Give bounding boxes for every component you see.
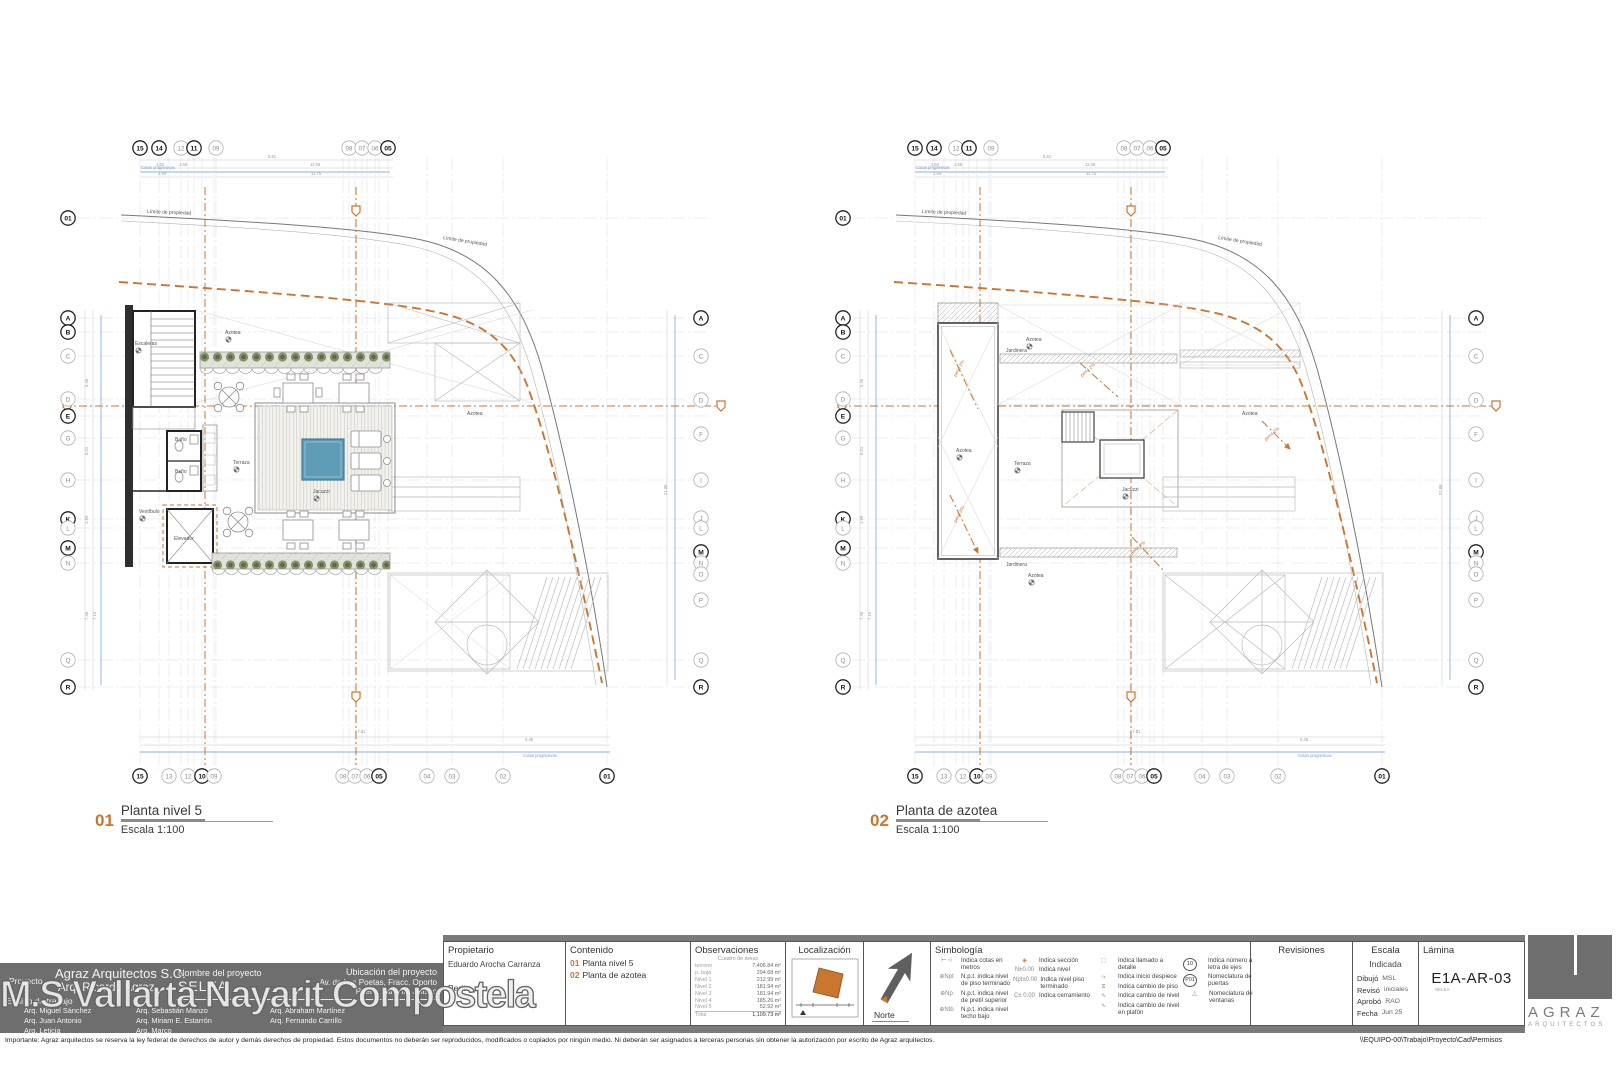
dimension-text: 1.52 — [156, 162, 165, 167]
symbology-text: Indica nivel — [1039, 967, 1091, 974]
grid-bubble-label: E — [841, 413, 846, 420]
grid-bubble-label: C — [66, 353, 71, 360]
grid-bubble-label: C — [1474, 353, 1479, 360]
area-row: Nivel 1212.99 m² — [695, 977, 781, 984]
grid-bubble-label: 15 — [911, 773, 919, 780]
grid-bubble-label: 14 — [155, 145, 163, 152]
grid-bubble-label: D — [1474, 397, 1479, 404]
grid-bubble-label: F — [699, 431, 703, 438]
grid-bubble-label: N — [1474, 560, 1478, 567]
symbology-item: ∿Indica cambio de nivel — [1092, 993, 1182, 1000]
grid-bubble-label: G — [66, 435, 71, 442]
reviewed-by-value: iniciales — [1384, 986, 1408, 995]
symbology-text: Indica cambio de piso — [1118, 984, 1182, 991]
observations-header: Observaciones — [695, 945, 781, 956]
symbology-glyph-despiece: ⤷ — [1092, 974, 1115, 981]
plan-label: Cotas progresivas — [1298, 753, 1332, 758]
dimension-text: 0.45 — [525, 737, 534, 742]
grid-bubble-label: 10 — [198, 773, 206, 780]
symbology-glyph-dim: ⊢⊣ — [935, 958, 958, 972]
symbology-glyph-np: ⊕Np — [935, 991, 958, 1005]
section-marker — [1127, 206, 1135, 216]
content-item-number: 01 — [570, 958, 579, 968]
content-item-number: 02 — [570, 970, 579, 980]
grid-bubble-label: L — [66, 525, 70, 532]
date-label: Fecha — [1357, 1009, 1378, 1018]
symbology-glyph-section: ◈ — [1013, 958, 1036, 965]
plan-label: Baño — [175, 437, 187, 443]
team-member: Arq. Miriam E. Estarrón — [136, 1016, 266, 1025]
date-row: Fecha Jun 25 — [1357, 1009, 1414, 1018]
grid-bubble-label: Q — [841, 657, 846, 664]
symbology-cell: Simbología ⊢⊣Indica cotas en metros⊕NptN… — [931, 942, 1251, 1025]
symbology-item: ⊢⊣Indica cotas en metros — [935, 958, 1012, 972]
title-block: Propietario Eduardo Arocha Carranza Peri… — [443, 935, 1525, 1035]
revisions-header: Revisiones — [1255, 945, 1348, 956]
dimension-text: 1.99 — [859, 515, 864, 524]
content-item-text: Planta de azotea — [582, 970, 646, 980]
dimension-text: 17.81 — [355, 729, 366, 734]
grid-bubble-label: 13 — [941, 773, 948, 780]
grid-bubble-label: M — [698, 549, 704, 556]
plan2-title: 02 Planta de azotea Escala 1:100 — [870, 803, 1048, 836]
plan-label: Límite de propiedad — [443, 235, 488, 248]
loungers — [351, 431, 391, 491]
grid-bubble-label: 08 — [1121, 145, 1128, 152]
sheet-number-header: Lámina — [1423, 945, 1520, 956]
team-member: Arq. Marco — [136, 1026, 266, 1035]
grid-bubble-label: 05 — [384, 145, 392, 152]
dimension-text: 5.46 — [859, 378, 864, 387]
grid-bubble-label: H — [66, 477, 70, 484]
symbology-item: ⤷Indica inicio despiece — [1092, 974, 1182, 981]
grid-bubble-label: A — [1474, 315, 1479, 322]
grid-bubble-label: M — [1473, 549, 1479, 556]
dimension-text: 5.46 — [84, 378, 89, 387]
roof-parapet — [938, 323, 998, 559]
copyright-disclaimer: Importante: Agraz arquitectos se reserva… — [5, 1037, 934, 1044]
area-row: p. baja294.68 m² — [695, 970, 781, 977]
grid-bubble-label: A — [66, 315, 71, 322]
grid-bubble-label: L — [699, 525, 703, 532]
grid-bubble-label: N — [66, 560, 70, 567]
dimension-text: 1.52 — [931, 162, 940, 167]
grid-bubble-label: R — [1474, 684, 1479, 691]
level-marker-icon — [140, 516, 145, 521]
north-label: Norte — [872, 1010, 909, 1022]
level-marker-icon — [136, 348, 141, 353]
dimension-text: 7.46 — [859, 611, 864, 620]
dimension-text: 5.81 — [1043, 154, 1052, 159]
team-member: Arq. Juan Antonio — [24, 1016, 132, 1025]
scale-header: Escala — [1357, 945, 1414, 956]
grid-bubble-label: I — [1475, 477, 1477, 484]
grid-bubble-label: P — [1474, 597, 1478, 604]
plan-azotea: 1514121109080706051513121009080706050403… — [830, 125, 1510, 795]
grid-bubble-label: 07 — [359, 145, 366, 152]
symbology-col2: ◈Indica secciónN±0.00Indica nivelNpt±0.0… — [1013, 958, 1091, 1024]
section-marker — [1127, 692, 1135, 702]
grid-bubble-label: C — [841, 353, 846, 360]
plan-label: Cotas progresivas — [523, 753, 557, 758]
grid-bubble-label: 01 — [1378, 773, 1386, 780]
plan2-scale: Escala 1:100 — [896, 824, 1048, 836]
plan-label: Límite de propiedad — [922, 209, 967, 217]
plan-artwork — [838, 160, 1500, 765]
level-marker-icon — [1123, 494, 1128, 499]
grid-bubble-label: O — [1474, 571, 1479, 578]
plan2-number: 02 — [870, 803, 889, 829]
grid-bubble-label: 05 — [375, 773, 383, 780]
symbology-item: ⊕NptN.p.t. indica nivel de piso terminad… — [935, 974, 1012, 988]
grid-bubble-label: 07 — [1134, 145, 1141, 152]
logo-slit — [1574, 935, 1577, 975]
area-row: Nivel 552.92 m² — [695, 1004, 781, 1011]
grid-bubble-label: N — [841, 560, 845, 567]
grid-bubble-label: 05 — [1159, 145, 1167, 152]
symbology-item: ⊕NpN.p.t. indica nivel de pretil superio… — [935, 991, 1012, 1005]
dimension-text: 11.75 — [311, 171, 322, 176]
grid-bubble-label: 14 — [930, 145, 938, 152]
symbology-glyph-lvlpt: Npt±0.00 — [1013, 977, 1037, 991]
dimension-text: 5.81 — [268, 154, 277, 159]
stair-landing — [133, 407, 195, 429]
planter-bottom — [212, 553, 390, 569]
grid-bubble-label: R — [66, 684, 71, 691]
area-row: Nivel 4185.26 m² — [695, 998, 781, 1005]
sheet-number-sub: SELEA — [1435, 987, 1520, 992]
grid-bubble-label: A — [699, 315, 704, 322]
symbology-item: Npt±0.00Indica nivel piso terminado — [1013, 977, 1091, 991]
plan-label: Jacuzzi — [313, 489, 330, 495]
symbology-glyph-c10: 10 — [1183, 958, 1197, 971]
grid-bubble-label: D — [66, 396, 71, 403]
level-marker-icon — [234, 467, 239, 472]
vestibule-walls — [133, 431, 167, 491]
approved-by-value: RAO — [1385, 997, 1400, 1006]
grid-bubble-label: 09 — [211, 773, 218, 780]
plan-label: Azotea — [467, 411, 483, 417]
grid-bubble-label: 12 — [960, 773, 967, 780]
plan-label: Azotea — [956, 448, 972, 454]
symbology-text: Indica cerramiento — [1039, 993, 1091, 1000]
grid-bubble-label: L — [841, 525, 845, 532]
symbology-text: Indica llamado a detalle — [1118, 958, 1182, 972]
grid-bubble-label: B — [841, 329, 846, 336]
drawing-sheet: 1514121109080706051513121009080706050403… — [0, 0, 1620, 1080]
dimension-text: 0.45 — [1300, 737, 1309, 742]
symbology-item: ⧖Indica cambio de piso — [1092, 984, 1182, 991]
symbology-item: P01Nomeclatura de puertas — [1183, 974, 1256, 988]
level-marker-icon — [957, 455, 962, 460]
grid-bubble-label: 01 — [839, 215, 847, 222]
plan1-scale: Escala 1:100 — [121, 824, 273, 836]
plan-label: Límite de propiedad — [147, 209, 192, 217]
counter-appliances — [205, 433, 215, 485]
plan-label: Jardinera — [1006, 562, 1027, 568]
grid-bubble-label: 15 — [136, 145, 144, 152]
adjacent-roof-outlines — [388, 303, 608, 674]
grid-bubble-label: 01 — [603, 773, 611, 780]
dimension-text: 1.56 — [954, 162, 963, 167]
location-map-cell: Localización — [786, 942, 864, 1025]
grid-bubble-label: C — [699, 353, 704, 360]
grid-bubble-label: M — [840, 545, 846, 552]
areas-table: terreno7,406.84 m²p. baja294.68 m²Nivel … — [695, 963, 781, 1019]
plan-label: Azotea — [225, 330, 241, 336]
grid-bubble-label: G — [841, 435, 846, 442]
symbology-glyph-cerr: C± 0.00 — [1013, 993, 1036, 1000]
grid-bubble-label: 12 — [185, 773, 192, 780]
drawn-by-row: Dibujó MSL — [1357, 974, 1414, 983]
level-marker-icon — [314, 496, 319, 501]
symbology-glyph-p01: P01 — [1183, 974, 1197, 987]
approved-by-row: Aprobó RAO — [1357, 997, 1414, 1006]
symbology-text: Nomeclatura de ventanas — [1209, 991, 1256, 1005]
symbology-text: Indica inicio despiece — [1118, 974, 1182, 981]
observations-cell: Observaciones Cuadro de áreas terreno7,4… — [691, 942, 786, 1025]
plan-label: Escaleras — [135, 341, 157, 347]
level-marker-icon — [1015, 468, 1020, 473]
plan1-number: 01 — [95, 803, 114, 829]
symbology-text: Indica nivel piso terminado — [1040, 977, 1091, 991]
symbology-glyph-detail: ⬚ — [1092, 958, 1115, 972]
grid-bubble-label: 11 — [191, 145, 198, 152]
scale-value: Indicada — [1357, 959, 1414, 969]
team-member — [270, 1026, 410, 1035]
plan-label: Azotea — [1026, 337, 1042, 343]
symbology-grid: ⊢⊣Indica cotas en metros⊕NptN.p.t. indic… — [935, 958, 1246, 1024]
north-cell: Norte — [864, 942, 931, 1025]
logo-subtitle: ARQUITECTOS — [1528, 1022, 1620, 1028]
date-value: Jun 25 — [1382, 1009, 1402, 1018]
planter-top — [200, 352, 390, 368]
symbology-header: Simbología — [935, 945, 1246, 956]
reviewed-by-row: Revisó iniciales — [1357, 986, 1414, 995]
symbology-glyph-npt: ⊕Npt — [935, 974, 958, 988]
planter-scallops — [200, 368, 382, 374]
area-row: Nivel 2181.94 m² — [695, 984, 781, 991]
symbology-item: ∿Indica cambio de nivel en plafón — [1092, 1003, 1182, 1017]
grid-bubble-label: 06 — [1139, 773, 1146, 780]
grid-bubble-label: 05 — [1150, 773, 1158, 780]
grid-bubble-label: B — [66, 329, 71, 336]
plan-label: Terraza — [1014, 461, 1031, 467]
grid-bubble-label: 12 — [953, 145, 960, 152]
symbology-glyph-piso: ⧖ — [1092, 984, 1115, 991]
jacuzzi-outline — [1100, 440, 1144, 478]
grid-bubble-label: R — [841, 684, 846, 691]
grid-bubble-label: 12 — [178, 145, 185, 152]
grid-bubble-label: M — [65, 545, 71, 552]
section-lines — [63, 187, 723, 765]
dimension-text: 7.16 — [92, 611, 97, 620]
grid-bubble-label: 07 — [352, 773, 359, 780]
grid-bubble-label: P — [699, 597, 703, 604]
grid-bubble-label: 10 — [973, 773, 981, 780]
title-rule — [121, 819, 273, 822]
stair-hatch — [517, 577, 601, 669]
symbology-glyph-tri: △ — [1183, 991, 1206, 1005]
dimension-text: 7.16 — [867, 611, 872, 620]
plan-label: Azotea — [1028, 573, 1044, 579]
symbology-text: N.p.t. indica nivel de pretil superior — [961, 991, 1012, 1005]
scale-cell: Escala Indicada Dibujó MSL Revisó inicia… — [1353, 942, 1419, 1025]
owner-header: Propietario — [448, 945, 561, 956]
grid-bubble-label: Q — [699, 657, 704, 664]
symbology-item: ⊕NtbN.p.t. indica nivel techo bajo — [935, 1007, 1012, 1021]
grid-bubble-label: L — [1474, 525, 1478, 532]
grid-bubble-label: 02 — [500, 773, 507, 780]
dimension-text: 1.56 — [179, 162, 188, 167]
plan-label: Terraza — [233, 460, 250, 466]
reviewed-by-label: Revisó — [1357, 986, 1380, 995]
plan-artwork — [63, 160, 725, 765]
roof-hatch-top — [938, 303, 998, 323]
plan-label: Jacuzzi — [1122, 487, 1139, 493]
symbology-glyph-nivel: ∿ — [1092, 993, 1115, 1000]
firm-logo: AGRAZ ARQUITECTOS — [1528, 935, 1620, 1028]
team-member: Arq. Fernando Carrillo — [270, 1016, 410, 1025]
symbology-col1: ⊢⊣Indica cotas en metros⊕NptN.p.t. indic… — [935, 958, 1012, 1024]
grid-bubble-label: 13 — [166, 773, 173, 780]
grid-bubble-label: 07 — [1127, 773, 1134, 780]
symbology-text: N.p.t. indica nivel techo bajo — [961, 1007, 1012, 1021]
symbology-item: C± 0.00Indica cerramiento — [1013, 993, 1091, 1000]
content-item-text: Planta nivel 5 — [582, 958, 633, 968]
plan1-title: 01 Planta nivel 5 Escala 1:100 — [95, 803, 273, 836]
plan-label: Límite de propiedad — [1218, 235, 1263, 248]
grid-bubble-label: 09 — [213, 145, 220, 152]
drawn-by-value: MSL — [1382, 974, 1396, 983]
sheet-number-cell: Lámina E1A-AR-03 SELEA — [1419, 942, 1524, 1025]
stairs-room — [133, 311, 195, 407]
grid-bubble-label: 08 — [346, 145, 353, 152]
plan2-name: Planta de azotea — [896, 803, 1048, 818]
file-path: \\EQUIPO-00\Trabajo\Proyecto\Cad\Permiso… — [1360, 1037, 1502, 1044]
dimension-text: 11.75 — [1086, 171, 1097, 176]
stair-hatch — [1292, 577, 1376, 669]
dimension-text: 6.01 — [84, 446, 89, 455]
level-marker-icon — [226, 337, 231, 342]
grid-bubble-label: 08 — [340, 773, 347, 780]
symbology-item: △Nomeclatura de ventanas — [1183, 991, 1256, 1005]
approved-by-label: Aprobó — [1357, 997, 1381, 1006]
grid-bubble-label: D — [841, 396, 846, 403]
grid-bubble-label: 04 — [424, 773, 431, 780]
area-row: Nivel 3181.94 m² — [695, 991, 781, 998]
grid-bubble-label: 06 — [1147, 145, 1154, 152]
dimension-text: 1.54 — [158, 171, 167, 176]
core-wall — [125, 305, 133, 567]
symbology-item: N±0.00Indica nivel — [1013, 967, 1091, 974]
section-marker — [352, 692, 360, 702]
logo-name: AGRAZ — [1528, 1004, 1620, 1021]
plan-nivel5: 1514121109080706051513121009080706050403… — [55, 125, 735, 795]
plan-label: Azotea — [1242, 411, 1258, 417]
dimension-text: 1.99 — [84, 515, 89, 524]
section-marker — [1492, 401, 1500, 411]
team-member: Arq. Leticia — [24, 1026, 132, 1035]
symbology-item: ⬚Indica llamado a detalle — [1092, 958, 1182, 972]
titleblock-body: Propietario Eduardo Arocha Carranza Peri… — [443, 941, 1525, 1026]
symbology-text: Indica número a letra de ejes — [1208, 958, 1256, 972]
grid-bubble-label: 03 — [449, 773, 456, 780]
plan-label: Jardinera — [1006, 348, 1027, 354]
symbology-col4: 10Indica número a letra de ejesP01Nomecl… — [1183, 958, 1256, 1024]
level-marker-icon — [1027, 344, 1032, 349]
area-row: terreno7,406.84 m² — [695, 963, 781, 970]
grid-bubble-label: 15 — [911, 145, 919, 152]
jardinera-bar — [1180, 350, 1300, 357]
areas-table-title: Cuadro de áreas — [695, 956, 781, 962]
grid-bubble-label: R — [699, 684, 704, 691]
plan-label: Elevador — [174, 536, 194, 542]
grid-bubble-label: 06 — [372, 145, 379, 152]
owner-name: Eduardo Arocha Carranza — [448, 960, 561, 969]
grid-bubble-label: H — [841, 477, 845, 484]
grid-bubble-label: Q — [66, 657, 71, 664]
grid-bubble-label: Q — [1474, 657, 1479, 664]
grid-bubble-label: 03 — [1224, 773, 1231, 780]
revisions-cell: Revisiones — [1251, 942, 1353, 1025]
sheet-number: E1A-AR-03 — [1423, 970, 1520, 987]
area-row: Total1,109.73 m² — [695, 1011, 781, 1019]
north-arrow-icon — [868, 947, 928, 1009]
plan1-name: Planta nivel 5 — [121, 803, 273, 818]
grid-bubble-label: 08 — [1115, 773, 1122, 780]
symbology-text: Indica sección — [1039, 958, 1091, 965]
symbology-glyph-ntb: ⊕Ntb — [935, 1007, 958, 1021]
jardinera-strip-top — [1000, 354, 1177, 363]
grid-bubble-label: 01 — [64, 215, 72, 222]
grid-bubble-label: N — [699, 560, 703, 567]
section-marker — [352, 206, 360, 216]
content-item: 01 Planta nivel 5 — [570, 958, 686, 968]
symbology-item: 10Indica número a letra de ejes — [1183, 958, 1256, 972]
grid-bubble-label: 15 — [136, 773, 144, 780]
dimension-text: 6.01 — [859, 446, 864, 455]
logo-mark — [1528, 935, 1612, 999]
location-map-header: Localización — [790, 945, 859, 956]
content-header: Contenido — [570, 945, 686, 956]
plan-label: Baño — [175, 469, 187, 475]
grid-bubble-label: A — [841, 315, 846, 322]
symbology-text: Indica cambio de nivel en plafón — [1118, 1003, 1182, 1017]
plan-label: pend 2% — [1263, 426, 1280, 442]
dimension-text: 21.88 — [663, 484, 668, 495]
dimension-text: 21.88 — [1438, 484, 1443, 495]
grid-bubble-label: 06 — [364, 773, 371, 780]
dimension-text: 17.81 — [1130, 729, 1141, 734]
section-lines — [838, 187, 1498, 765]
grid-bubble-label: 09 — [988, 145, 995, 152]
grid-bubble-label: 11 — [966, 145, 973, 152]
titleblock-bottom-bar — [443, 1026, 1525, 1033]
level-marker-icon — [1029, 580, 1034, 585]
grid-bubble-label: 04 — [1199, 773, 1206, 780]
dimension-text: 7.46 — [84, 611, 89, 620]
grid-bubble-label: 02 — [1275, 773, 1282, 780]
symbology-glyph-lvl: N±0.00 — [1013, 967, 1036, 974]
watermark-text: M.S Vallarta Nayarit Compostela — [0, 974, 446, 1017]
symbology-text: Nomeclatura de puertas — [1208, 974, 1256, 988]
dimension-text: 1.54 — [933, 171, 942, 176]
grid-bubble-label: O — [699, 571, 704, 578]
content-item: 02 Planta de azotea — [570, 970, 686, 980]
symbology-text: Indica cambio de nivel — [1118, 993, 1182, 1000]
symbology-col3: ⬚Indica llamado a detalle⤷Indica inicio … — [1092, 958, 1182, 1024]
